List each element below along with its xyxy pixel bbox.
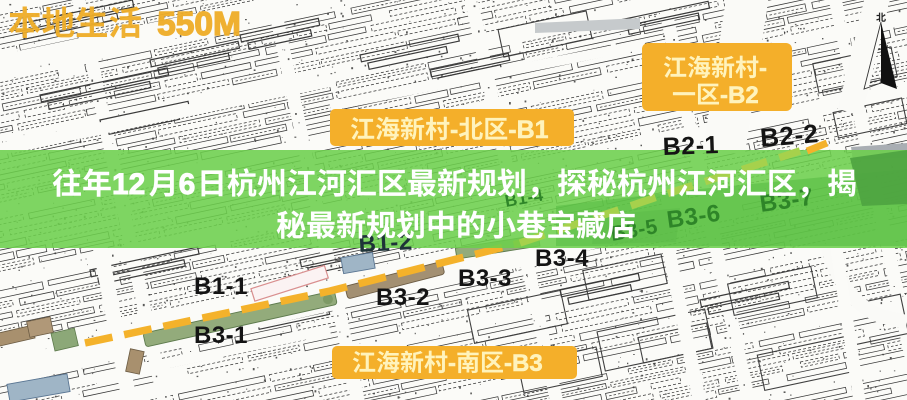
svg-text:B3-4: B3-4	[535, 245, 589, 272]
svg-text:B2-1: B2-1	[662, 131, 719, 161]
svg-text:6: 6	[179, 168, 196, 201]
svg-text:-: -	[448, 350, 456, 377]
svg-text:B3-3: B3-3	[458, 265, 512, 292]
svg-text:B2-2: B2-2	[759, 118, 820, 153]
svg-text:B3-2: B3-2	[376, 284, 430, 311]
svg-text:B3-1: B3-1	[194, 322, 248, 349]
svg-text:12: 12	[112, 168, 145, 201]
svg-text:-B3: -B3	[504, 350, 543, 377]
svg-text:B1-1: B1-1	[194, 273, 248, 300]
svg-text:-: -	[759, 55, 767, 82]
svg-text:550M: 550M	[157, 6, 241, 43]
svg-text:-B2: -B2	[720, 82, 759, 109]
svg-text:-: -	[450, 116, 458, 144]
svg-text:-B1: -B1	[508, 116, 548, 144]
